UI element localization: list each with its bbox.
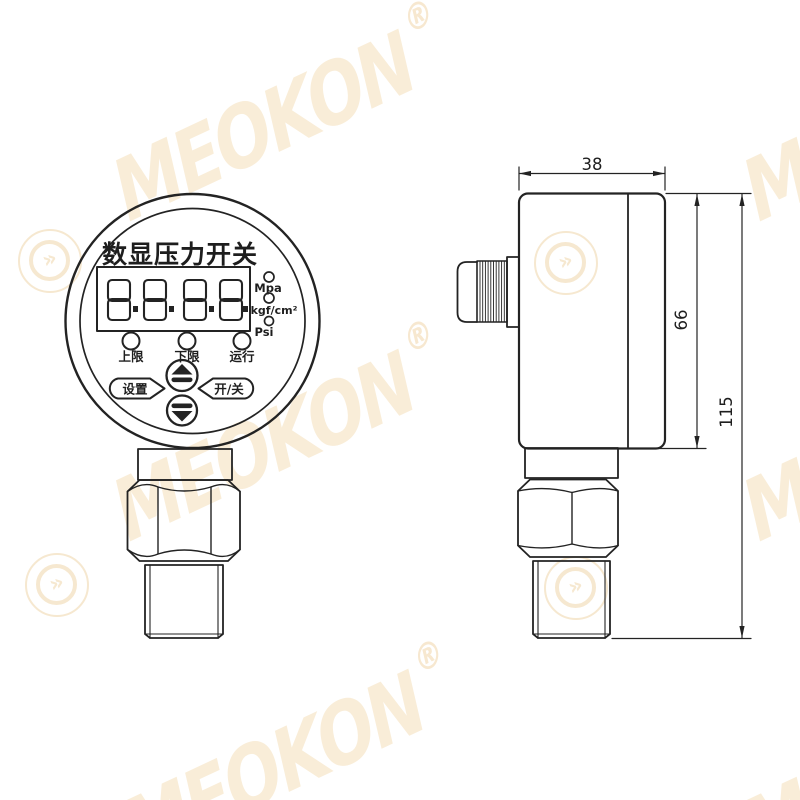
drawing-canvas: 数显压力开关 Mpa — [0, 0, 800, 800]
status-indicators: 上限 下限 运行 — [118, 333, 255, 365]
dimension-115: 115 — [612, 194, 751, 639]
dim38-arrow-left — [519, 171, 531, 176]
front-thread-stub — [145, 565, 223, 638]
button-power[interactable]: 开/关 — [199, 379, 254, 399]
front-stem — [128, 449, 241, 638]
side-view: 38 66 115 — [458, 155, 752, 639]
button-up[interactable] — [167, 360, 198, 391]
front-hex-arcs — [128, 485, 241, 557]
side-hex-arcs — [518, 489, 618, 548]
down-bar-icon — [172, 404, 193, 409]
dimension-38: 38 — [519, 155, 665, 190]
dim66-value: 66 — [672, 310, 691, 331]
dim38-arrow-right — [653, 171, 665, 176]
gland-flange — [507, 257, 519, 327]
front-hex-nut — [128, 480, 241, 561]
front-thread-relief-lines — [145, 565, 223, 638]
unit-label-psi: Psi — [254, 325, 273, 339]
front-title: 数显压力开关 — [102, 240, 258, 269]
led-lower-limit — [179, 333, 196, 350]
side-neck — [525, 448, 618, 478]
gland-cap — [458, 262, 478, 322]
pressure-switch-technical-drawing: MEOKON® MEOKON® MEOKON® MEOKON® MEOKON® … — [0, 0, 800, 800]
cable-gland — [458, 257, 520, 327]
unit-indicators: Mpa kgf/cm² Psi — [251, 272, 298, 339]
gland-ribbed-body — [477, 261, 507, 322]
seven-segment-digits — [108, 280, 242, 320]
power-button-label: 开/关 — [214, 382, 244, 397]
dim38-value: 38 — [582, 155, 603, 174]
decimal-points — [133, 306, 248, 312]
front-view: 数显压力开关 Mpa — [66, 194, 320, 638]
button-down[interactable] — [167, 396, 197, 426]
button-set[interactable]: 设置 — [110, 379, 165, 399]
gland-ribs — [480, 261, 504, 322]
side-stem — [518, 448, 618, 638]
dim66-arrow-top — [694, 194, 699, 206]
side-body — [519, 194, 665, 449]
led-upper-limit — [123, 333, 140, 350]
front-hex-facets — [158, 487, 211, 554]
dim115-value: 115 — [717, 396, 736, 428]
set-button-label: 设置 — [122, 382, 148, 397]
side-thread-stub — [533, 561, 610, 638]
front-neck — [138, 449, 232, 480]
status-label-run: 运行 — [229, 349, 255, 364]
side-thread-relief-lines — [533, 561, 610, 638]
dim115-arrow-top — [739, 194, 744, 206]
status-label-upper: 上限 — [118, 349, 144, 364]
led-running — [234, 333, 251, 350]
down-triangle-icon — [172, 411, 193, 422]
dim115-arrow-bottom — [739, 626, 744, 638]
dim66-arrow-bottom — [694, 436, 699, 448]
unit-label-kgfcm2: kgf/cm² — [251, 304, 298, 317]
up-bar-icon — [172, 378, 193, 383]
up-triangle-icon — [172, 364, 193, 375]
lcd-display — [97, 267, 250, 331]
